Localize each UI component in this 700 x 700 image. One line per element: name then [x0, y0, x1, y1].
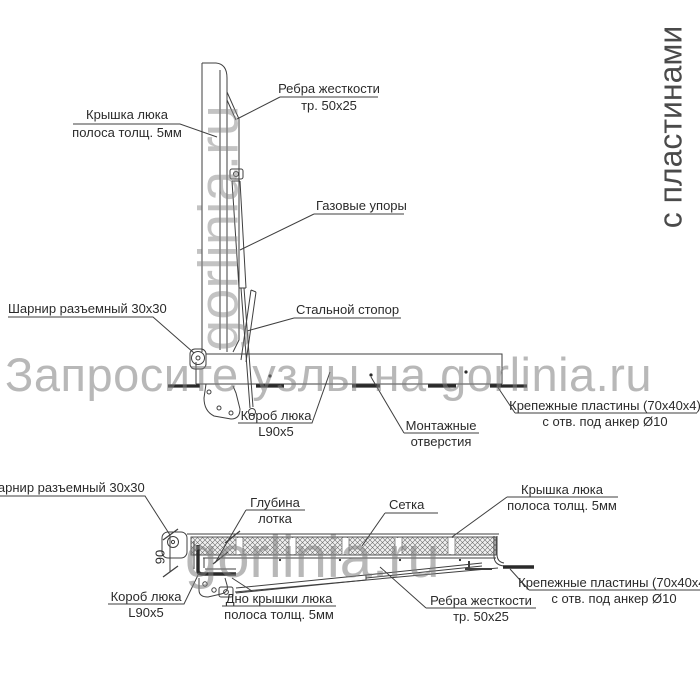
side-note-vertical: с пластинами: [653, 26, 690, 229]
technical-drawing-page: Запросите узлы на gorlinia.ru gorlinia.r…: [0, 0, 700, 700]
label-hinge-top: Шарнир разъемный 30x30: [8, 302, 167, 315]
label-hatch-box-bottom: Короб люка: [111, 590, 182, 603]
label-stiffening-ribs-top-2: тр. 50x25: [301, 99, 357, 112]
label-hatch-box-top: Короб люка: [241, 409, 312, 422]
label-fixing-plates-top-2: с отв. под анкер Ø10: [542, 415, 667, 428]
label-tray-depth: Глубина: [250, 496, 300, 509]
watermark-bottom: gorlinia.ru: [185, 524, 440, 591]
watermark-main: Запросите узлы на gorlinia.ru: [5, 347, 652, 402]
label-lid-bottom-plate: Дно крышки люка: [226, 592, 333, 605]
label-tray-depth-2: лотка: [258, 512, 292, 525]
label-hinge-bottom: Шарнир разъемный 30x30: [0, 481, 145, 494]
label-stiffening-ribs-bottom-2: тр. 50x25: [453, 610, 509, 623]
label-hatch-box-bottom-2: L90x5: [128, 606, 163, 619]
label-fixing-plates-bottom-2: с отв. под анкер Ø10: [551, 592, 676, 605]
label-stiffening-ribs-top: Ребра жесткости: [278, 82, 380, 95]
watermark-vertical: gorlinia.ru: [186, 105, 251, 351]
label-mesh: Сетка: [389, 498, 424, 511]
label-gas-struts: Газовые упоры: [316, 199, 407, 212]
dimension-90: 90: [153, 550, 168, 564]
label-mounting-holes-2: отверстия: [411, 435, 472, 448]
label-lid-cover-bottom-2: полоса толщ. 5мм: [507, 499, 617, 512]
label-fixing-plates-top: Крепежные пластины (70x40x4): [509, 399, 700, 412]
label-stiffening-ribs-bottom: Ребра жесткости: [430, 594, 532, 607]
label-fixing-plates-bottom: Крепежные пластины (70x40x4): [518, 576, 700, 589]
label-mounting-holes: Монтажные: [406, 419, 477, 432]
label-hatch-box-top-2: L90x5: [258, 425, 293, 438]
label-lid-cover-bottom: Крышка люка: [521, 483, 603, 496]
label-steel-stopper: Стальной стопор: [296, 303, 399, 316]
label-lid-bottom-plate-2: полоса толщ. 5мм: [224, 608, 334, 621]
label-lid-cover-top-2: полоса толщ. 5мм: [72, 126, 182, 139]
label-lid-cover-top: Крышка люка: [86, 108, 168, 121]
